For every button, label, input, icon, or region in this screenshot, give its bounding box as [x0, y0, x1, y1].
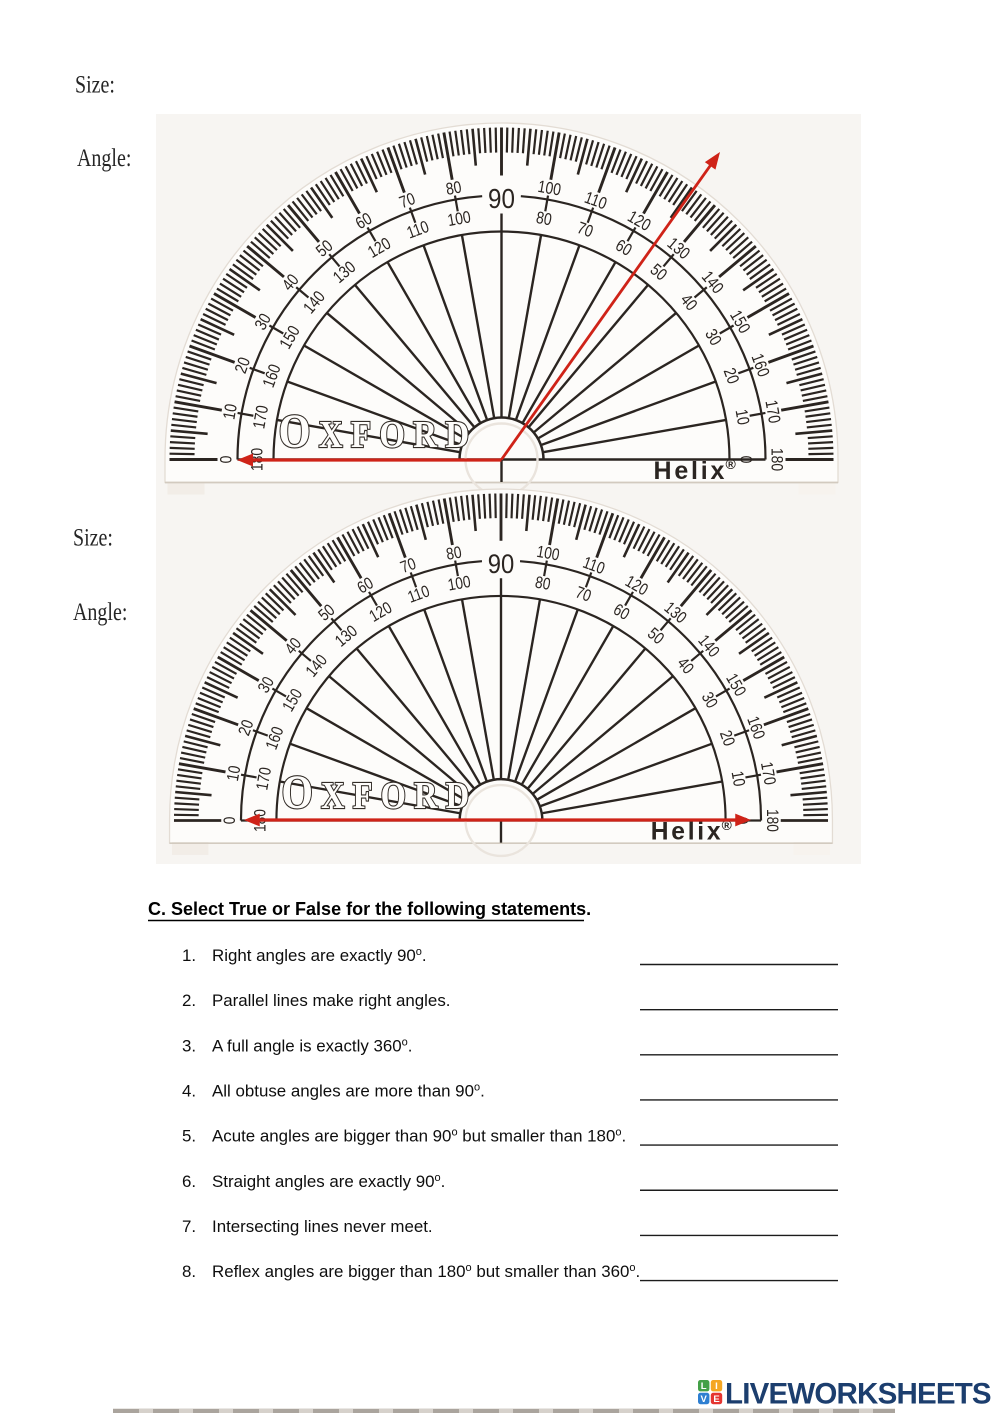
- svg-text:Helix: Helix: [651, 819, 724, 846]
- svg-text:0: 0: [736, 456, 755, 464]
- svg-text:10: 10: [727, 770, 748, 788]
- svg-text:180: 180: [767, 448, 786, 472]
- svg-text:80: 80: [534, 573, 552, 594]
- svg-text:Straight angles are exactly 90: Straight angles are exactly 90o.: [212, 1172, 445, 1191]
- svg-text:5.: 5.: [182, 1127, 196, 1146]
- svg-text:4.: 4.: [182, 1081, 196, 1100]
- svg-text:7.: 7.: [182, 1217, 196, 1236]
- svg-text:2.: 2.: [182, 991, 196, 1010]
- svg-text:LIVEWORKSHEETS: LIVEWORKSHEETS: [725, 1378, 991, 1411]
- svg-text:Parallel lines make right angl: Parallel lines make right angles.: [212, 991, 450, 1010]
- svg-text:90: 90: [488, 549, 515, 579]
- svg-text:Helix: Helix: [654, 457, 728, 485]
- svg-text:180: 180: [763, 809, 782, 832]
- svg-text:All obtuse angles are more tha: All obtuse angles are more than 90o.: [212, 1081, 485, 1100]
- svg-text:Angle:: Angle:: [77, 144, 131, 172]
- svg-text:3.: 3.: [182, 1036, 196, 1055]
- svg-text:Acute angles are bigger than 9: Acute angles are bigger than 90o but sma…: [212, 1127, 626, 1146]
- svg-text:A full angle is exactly 360o.: A full angle is exactly 360o.: [212, 1036, 413, 1055]
- svg-text:90: 90: [488, 185, 515, 215]
- svg-text:Intersecting lines never meet.: Intersecting lines never meet.: [212, 1217, 433, 1236]
- svg-text:Angle:: Angle:: [73, 598, 127, 626]
- svg-text:V: V: [701, 1394, 708, 1405]
- svg-text:OXFORD: OXFORD: [279, 404, 478, 458]
- svg-text:Right angles are exactly 90o.: Right angles are exactly 90o.: [212, 946, 427, 965]
- svg-text:6.: 6.: [182, 1172, 196, 1191]
- svg-text:10: 10: [224, 764, 245, 782]
- svg-text:100: 100: [535, 543, 561, 565]
- svg-text:1.: 1.: [182, 946, 196, 965]
- svg-text:170: 170: [253, 766, 275, 792]
- svg-text:100: 100: [446, 573, 472, 595]
- svg-text:0: 0: [221, 817, 240, 825]
- svg-text:C. Select True or False for th: C. Select True or False for the followin…: [148, 899, 591, 919]
- svg-text:Size:: Size:: [75, 70, 115, 98]
- svg-text:Reflex angles are bigger than: Reflex angles are bigger than 180o but s…: [212, 1262, 640, 1281]
- svg-text:Size:: Size:: [73, 523, 113, 551]
- svg-text:I: I: [715, 1381, 718, 1392]
- svg-text:E: E: [713, 1394, 719, 1405]
- svg-text:OXFORD: OXFORD: [281, 766, 477, 819]
- svg-text:80: 80: [445, 543, 463, 564]
- svg-text:®: ®: [726, 456, 737, 472]
- svg-text:0: 0: [217, 455, 236, 463]
- svg-text:L: L: [701, 1381, 707, 1392]
- svg-text:170: 170: [757, 761, 779, 787]
- svg-text:8.: 8.: [182, 1262, 196, 1281]
